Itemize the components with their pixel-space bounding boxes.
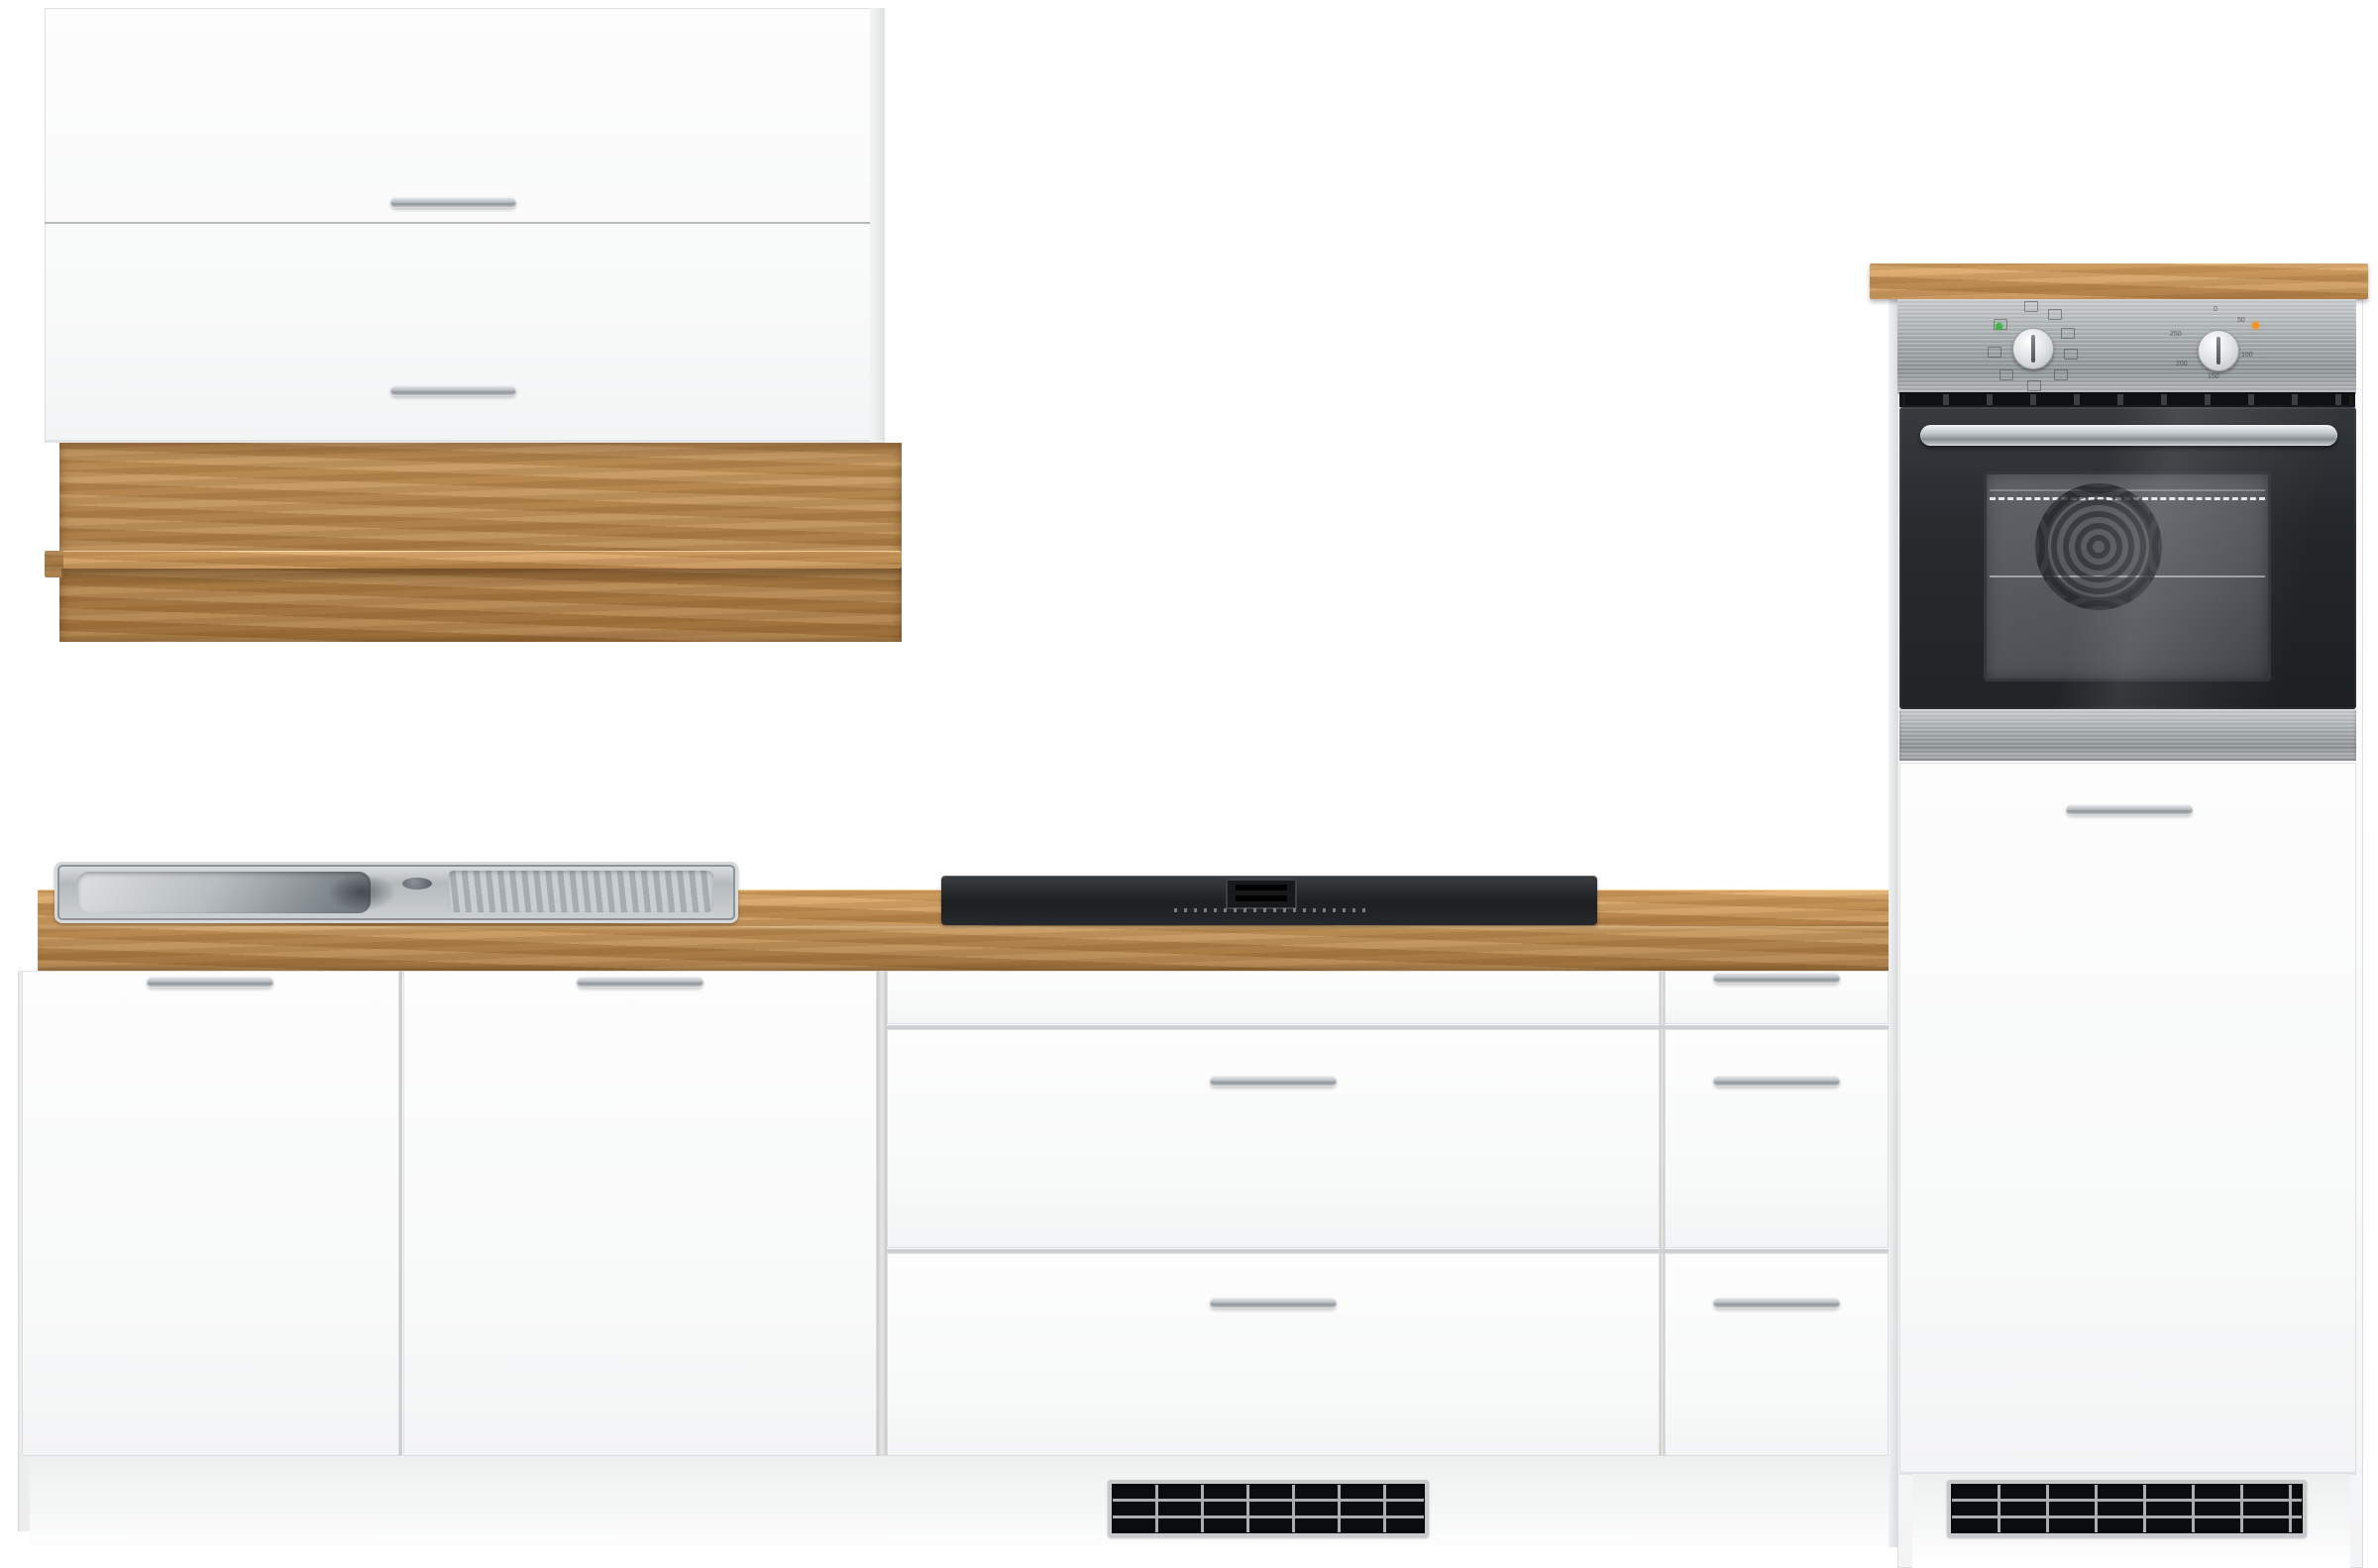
tall-cabinet-oak-top [1870, 263, 2368, 299]
sink-cabinet-left-door-handle [147, 977, 273, 988]
narrow-cabinet-drawer-bottom [1665, 1253, 1889, 1456]
wall-cabinet-bottom-flap-handle [390, 385, 516, 396]
drawer-divider [887, 1249, 1889, 1253]
oven-function-icon [1988, 347, 2001, 358]
base-plinth [30, 1456, 1896, 1555]
temp-label: 100 [2241, 352, 2253, 359]
wide-cabinet-drawer-bottom [887, 1253, 1660, 1456]
oven-bottom-trim [1899, 709, 2356, 761]
wall-shelf-board [59, 443, 902, 642]
oven-function-icon [2027, 380, 2041, 391]
oven-function-icon [2048, 309, 2062, 320]
wall-cabinet [45, 8, 885, 443]
temp-label: 0 [2214, 306, 2217, 313]
sink-bowl-shadow [327, 874, 396, 911]
cooktop-vent-slot [1236, 885, 1287, 890]
cabinet-gap [877, 971, 887, 1456]
temp-label: 50 [2237, 317, 2245, 324]
vent-grille-grid [1952, 1485, 2302, 1532]
wall-cabinet-side-panel [870, 8, 885, 441]
wall-shelf-rail [45, 551, 902, 569]
tall-cabinet-door-handle [2066, 804, 2193, 815]
cooktop-control-marks [1174, 908, 1372, 912]
oven-temperature-knob [2198, 330, 2239, 371]
tall-cabinet-side-edge [1889, 297, 1897, 1547]
drawer-divider [887, 1025, 1889, 1029]
wall-shelf-shadow [61, 569, 902, 585]
oven-function-icon [2000, 369, 2013, 380]
narrow-drawer-middle-handle [1713, 1076, 1840, 1087]
cooktop-vent-slot [1236, 895, 1287, 901]
oven-function-icon [2024, 301, 2038, 312]
sink-faucet-hole [402, 878, 432, 889]
oven-function-icon [2054, 369, 2068, 380]
oven-function-knob [2012, 328, 2054, 369]
temp-label: 250 [2170, 331, 2182, 338]
base-vent-grille [1108, 1480, 1429, 1537]
oven-function-icon [2064, 349, 2078, 360]
oven-heat-led [2252, 322, 2259, 329]
kitchen-product-photo: 0 50 100 150 200 250 [0, 0, 2378, 1568]
wide-cabinet-drawer-middle [887, 1029, 1660, 1248]
oven-function-icon [2061, 328, 2075, 339]
tall-cabinet-lower-door [1899, 763, 2356, 1474]
wall-cabinet-door-divider [45, 222, 870, 224]
cooktop-vent [1226, 879, 1297, 909]
temp-label: 150 [2208, 373, 2219, 380]
wide-cabinet-fixed-panel [887, 971, 1660, 1024]
sink-drainer [448, 871, 713, 912]
sink-cabinet-door-right [403, 971, 877, 1456]
oven-glass-reflection [1899, 407, 2356, 709]
temp-label: 200 [2176, 361, 2188, 367]
tall-cabinet-vent-grille [1947, 1480, 2307, 1537]
wide-drawer-middle-handle [1210, 1076, 1337, 1087]
narrow-drawer-bottom-handle [1713, 1298, 1840, 1308]
sink-cabinet-door-left [22, 971, 399, 1456]
oven-door-handle [1920, 425, 2337, 446]
wall-cabinet-top-flap-handle [390, 197, 516, 208]
wide-drawer-bottom-handle [1210, 1298, 1337, 1308]
oven-power-led [1996, 323, 2002, 330]
oven-control-panel [1897, 299, 2356, 394]
narrow-cabinet-drawer-middle [1665, 1029, 1889, 1248]
oven-cooling-vent [1899, 392, 2355, 407]
knob-pointer [2031, 335, 2035, 363]
oven-cooling-vent-slots [1905, 394, 2349, 405]
countertop-front-edge [38, 926, 1900, 971]
narrow-drawer-top-handle [1713, 973, 1840, 984]
vent-grille-grid [1113, 1485, 1424, 1532]
knob-pointer [2216, 337, 2220, 365]
sink-cabinet-door-divider [399, 971, 402, 1456]
sink-cabinet-right-door-handle [577, 977, 703, 988]
